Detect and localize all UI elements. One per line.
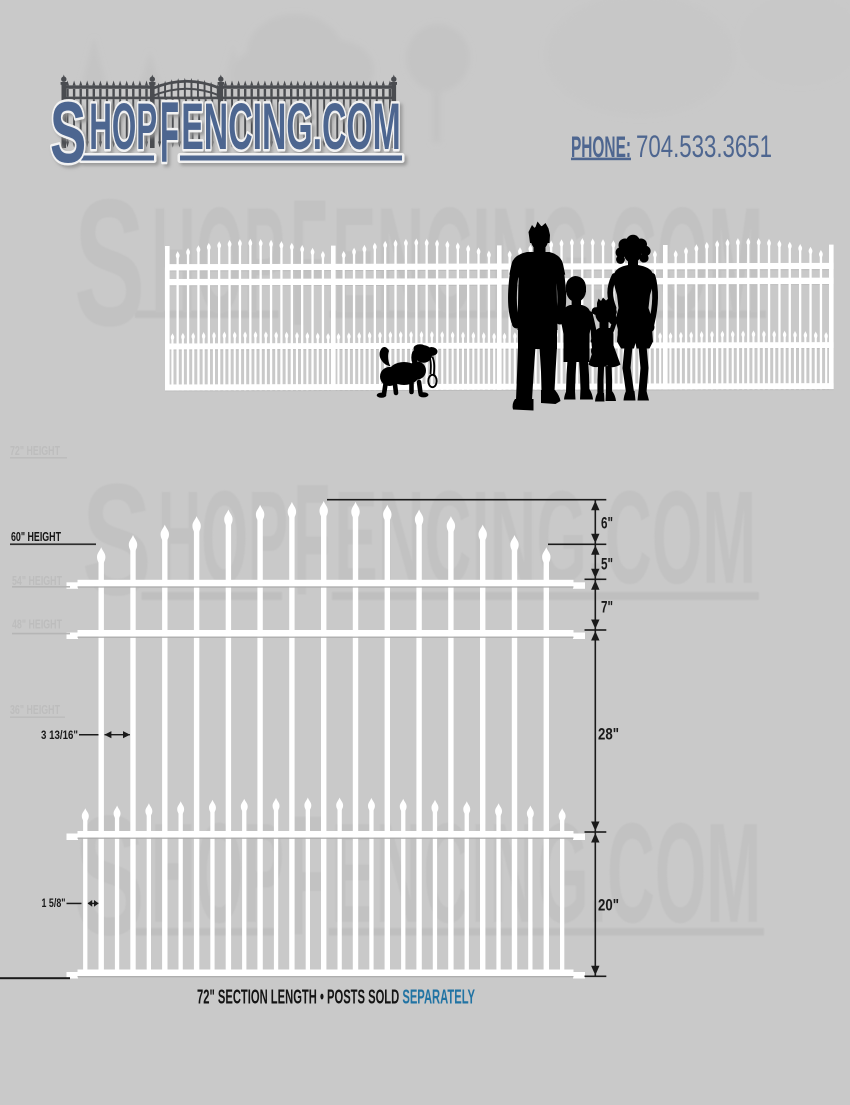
- svg-text:F: F: [160, 85, 179, 181]
- svg-text:ENCING.COM: ENCING.COM: [181, 90, 400, 163]
- svg-text:S: S: [82, 450, 152, 628]
- svg-text:6": 6": [601, 515, 613, 533]
- svg-text:72" HEIGHT: 72" HEIGHT: [10, 443, 60, 458]
- svg-text:HOP: HOP: [89, 90, 157, 163]
- svg-text:48" HEIGHT: 48" HEIGHT: [12, 617, 62, 632]
- svg-text:S: S: [74, 162, 145, 364]
- svg-text:HOP: HOP: [158, 464, 289, 612]
- svg-text:36" HEIGHT: 36" HEIGHT: [10, 702, 60, 717]
- svg-text:704.533.3651: 704.533.3651: [636, 128, 772, 164]
- svg-text:54" HEIGHT: 54" HEIGHT: [12, 573, 62, 588]
- svg-text:72" SECTION LENGTH • POSTS SOL: 72" SECTION LENGTH • POSTS SOLD SEPARATE…: [197, 986, 475, 1009]
- svg-text:20": 20": [598, 897, 619, 915]
- svg-text:60" HEIGHT: 60" HEIGHT: [11, 529, 61, 544]
- svg-text:5": 5": [601, 556, 613, 574]
- svg-text:S: S: [50, 85, 86, 181]
- svg-text:3 13/16": 3 13/16": [41, 728, 78, 742]
- svg-text:HOP: HOP: [151, 794, 284, 953]
- svg-text:7": 7": [601, 599, 613, 617]
- svg-text:28": 28": [598, 726, 619, 744]
- svg-text:1 5/8": 1 5/8": [42, 896, 66, 910]
